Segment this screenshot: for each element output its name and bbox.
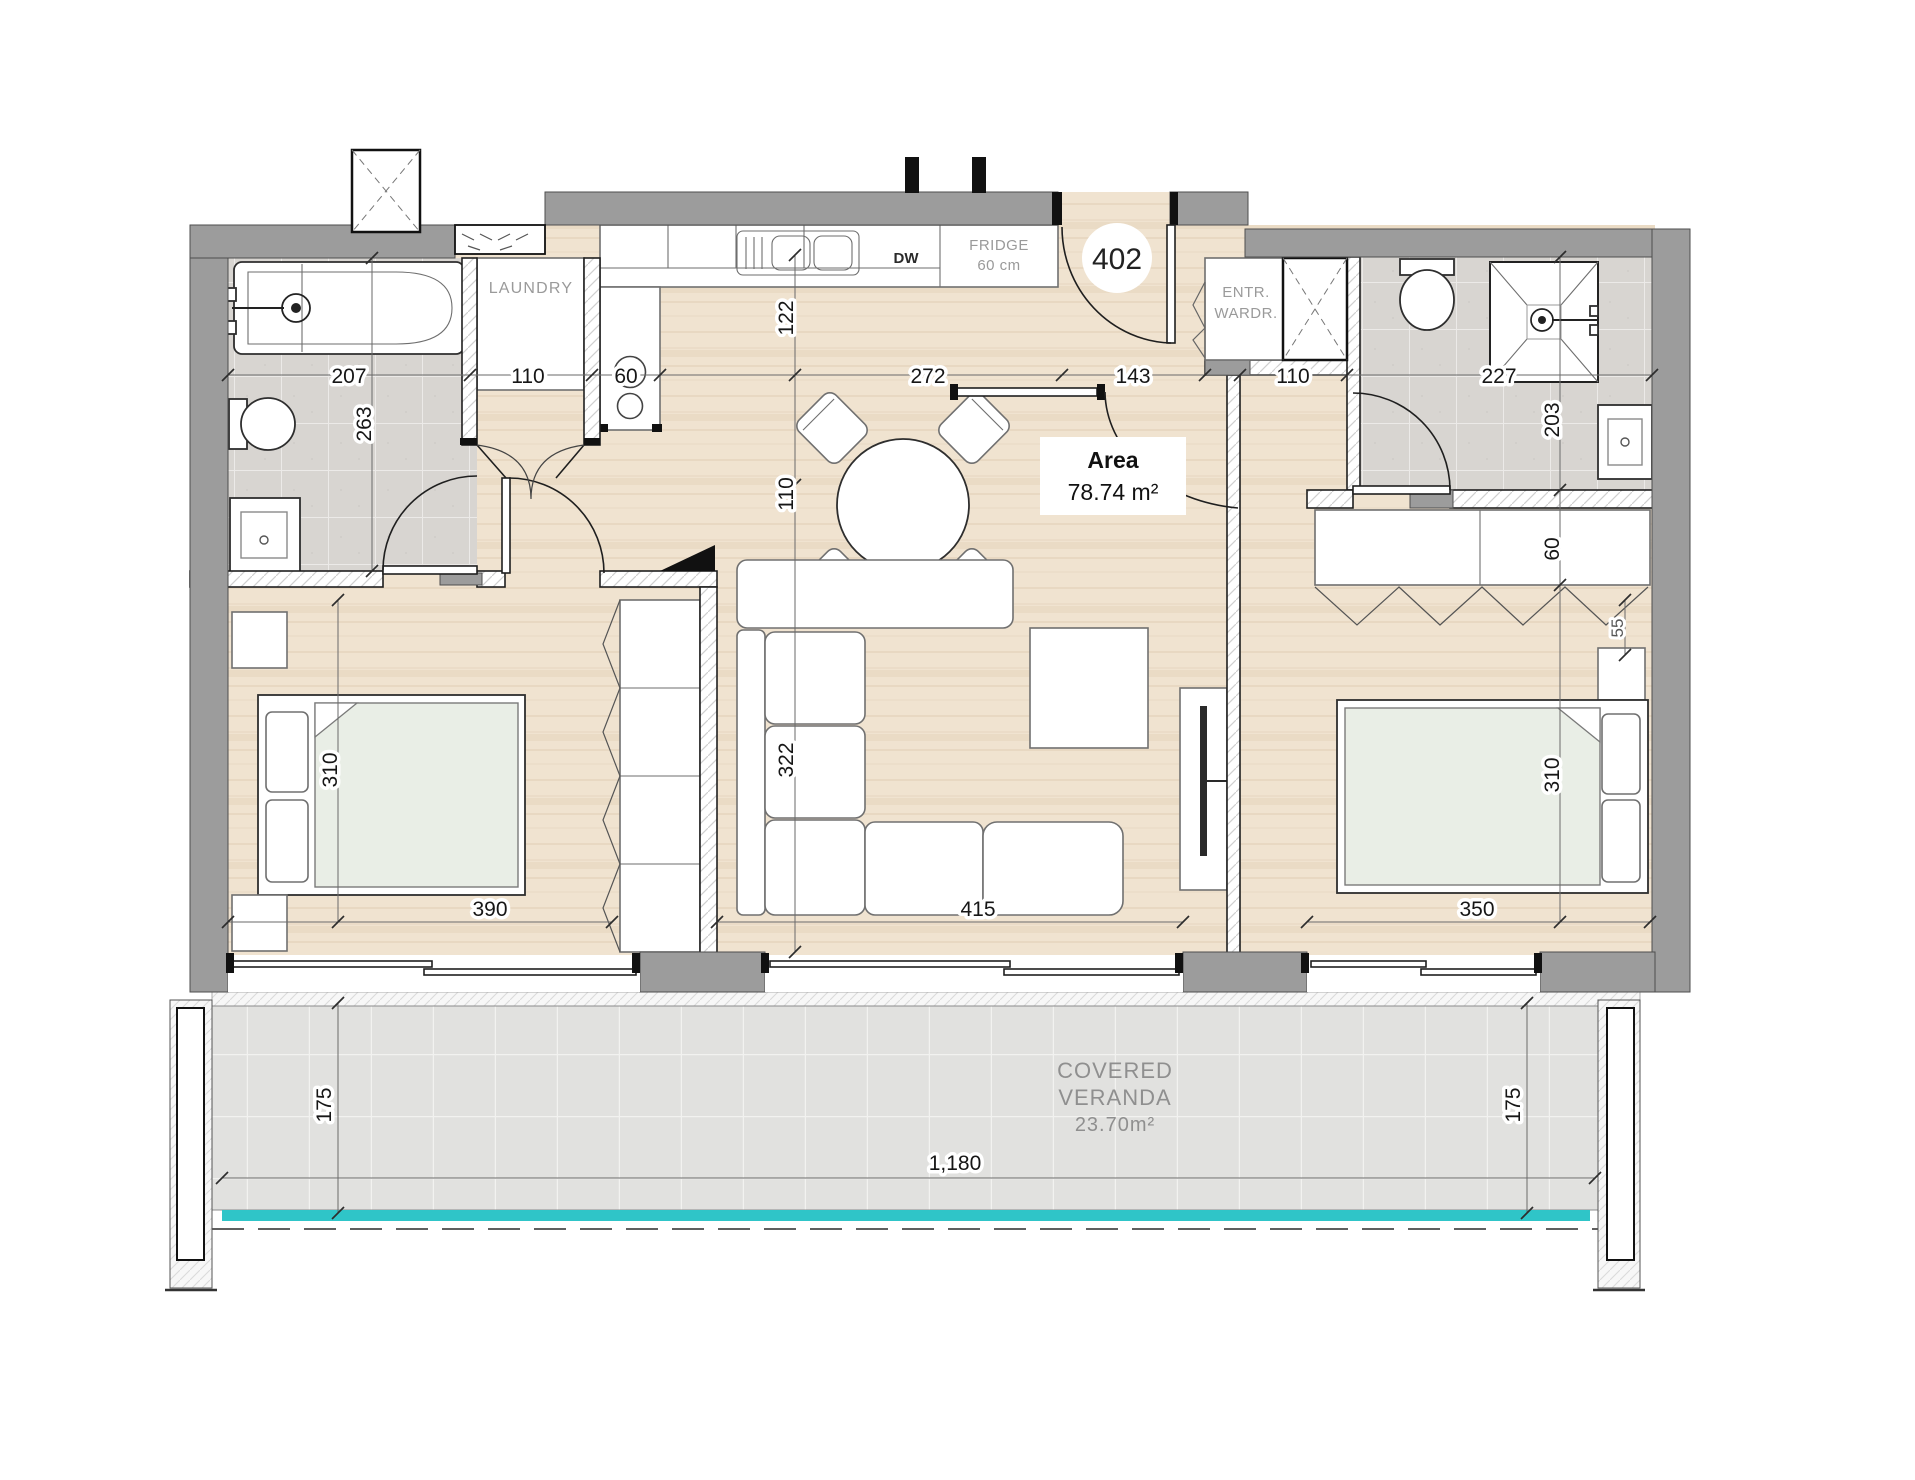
veranda-label-1: COVERED [1057, 1058, 1173, 1083]
washbasin-bath1 [230, 498, 300, 572]
unit-badge: 402 [1082, 223, 1152, 293]
dim-bath2-depth: 203 [1541, 402, 1564, 437]
wardrobe-label-1: ENTR. [1222, 284, 1270, 301]
bathtub [226, 262, 464, 354]
glass-balustrade [222, 1210, 1590, 1221]
area-box: Area 78.74 m² [1040, 437, 1186, 515]
dim-bed1-depth: 310 [319, 752, 342, 787]
windows [226, 953, 1542, 992]
dim-veranda-width: 1,180 [929, 1152, 982, 1175]
shower [1490, 262, 1598, 382]
fridge-label-2: 60 cm [977, 257, 1020, 274]
thermal-strip [212, 992, 1640, 1006]
wall-top-bath2 [1245, 229, 1655, 257]
area-label: Area [1087, 447, 1138, 473]
door-jamb [1170, 192, 1178, 225]
dim-laundry-width: 110 [511, 365, 544, 388]
dim-wardrobe2-depth: 60 [1541, 537, 1564, 560]
wall-top-entry [1170, 192, 1248, 225]
fridge-label-1: FRIDGE [969, 237, 1029, 254]
wall-left [190, 225, 228, 992]
veranda-column-right [1607, 1008, 1634, 1260]
dim-bath1-depth: 263 [353, 406, 376, 441]
nightstand [232, 612, 287, 668]
tv-unit [1180, 688, 1227, 890]
wall-top-kitchen [545, 192, 1058, 225]
dim-bath2-width: 227 [1481, 365, 1516, 388]
pillow [266, 712, 308, 792]
dim-nook-width: 110 [1276, 365, 1309, 388]
dining-table [837, 439, 969, 571]
dim-bed1-width: 390 [472, 898, 507, 921]
tv [1200, 706, 1207, 856]
veranda-label-2: VERANDA [1058, 1085, 1171, 1110]
dim-nightstand: 55 [1608, 619, 1627, 638]
dim-bath1-width: 207 [331, 365, 366, 388]
wall-right [1652, 229, 1690, 992]
dim-living-depth: 322 [775, 742, 798, 777]
pillow [1602, 800, 1640, 882]
door-jamb [1052, 192, 1062, 225]
kitchen-hob [598, 287, 662, 432]
window-bedroom2 [1301, 953, 1542, 992]
dishwasher-label: DW [894, 250, 920, 267]
wall-jamb-mark [972, 157, 986, 193]
dim-kitchen-clear: 122 [775, 300, 798, 335]
pillow [266, 800, 308, 882]
shaft-box-top [352, 150, 420, 232]
wall-bottom-pier [1183, 952, 1307, 992]
floor-plan-svg: DW FRIDGE 60 cm [0, 0, 1915, 1480]
unit-number: 402 [1092, 243, 1142, 276]
dim-veranda-left: 175 [313, 1087, 336, 1122]
dim-hob-width: 60 [614, 365, 637, 388]
bed-2 [1337, 700, 1648, 893]
veranda-column-left [177, 1008, 204, 1260]
toilet-bath2 [1400, 259, 1454, 330]
dim-bed2-depth: 310 [1541, 757, 1564, 792]
veranda [165, 992, 1645, 1290]
dim-bed2-width: 350 [1459, 898, 1494, 921]
wall-jamb-mark [905, 157, 919, 193]
kitchen-counter: DW FRIDGE 60 cm [600, 225, 1058, 287]
washbasin-bath2 [1598, 405, 1652, 479]
wall-bottom-pier [640, 952, 765, 992]
veranda-area: 23.70m² [1075, 1114, 1155, 1136]
bed-1 [258, 695, 525, 895]
shaft-box [1283, 258, 1347, 360]
laundry-label: LAUNDRY [489, 280, 574, 297]
nightstand [232, 895, 287, 951]
pillow [1602, 714, 1640, 794]
window-living [761, 953, 1183, 992]
wardrobe-label-2: WARDR. [1214, 305, 1277, 322]
dim-veranda-right: 175 [1502, 1087, 1525, 1122]
coffee-table [1030, 628, 1148, 748]
entrance-wardrobe: ENTR. WARDR. [1193, 258, 1283, 360]
floor-plan-page: DW FRIDGE 60 cm [0, 0, 1915, 1480]
wall-bottom-pier [1540, 952, 1655, 992]
nightstand [1598, 648, 1645, 700]
vent-grille [455, 225, 545, 254]
dim-dining-width: 272 [910, 365, 945, 388]
dim-aisle-width: 110 [775, 477, 798, 510]
entrance-threshold [1062, 192, 1170, 225]
window-bedroom1 [226, 953, 640, 992]
toilet-bath1 [229, 398, 295, 450]
area-value: 78.74 m² [1068, 479, 1159, 505]
veranda-floor [212, 1006, 1598, 1210]
dim-hall-width: 143 [1115, 365, 1150, 388]
dim-living-width: 415 [960, 898, 995, 921]
